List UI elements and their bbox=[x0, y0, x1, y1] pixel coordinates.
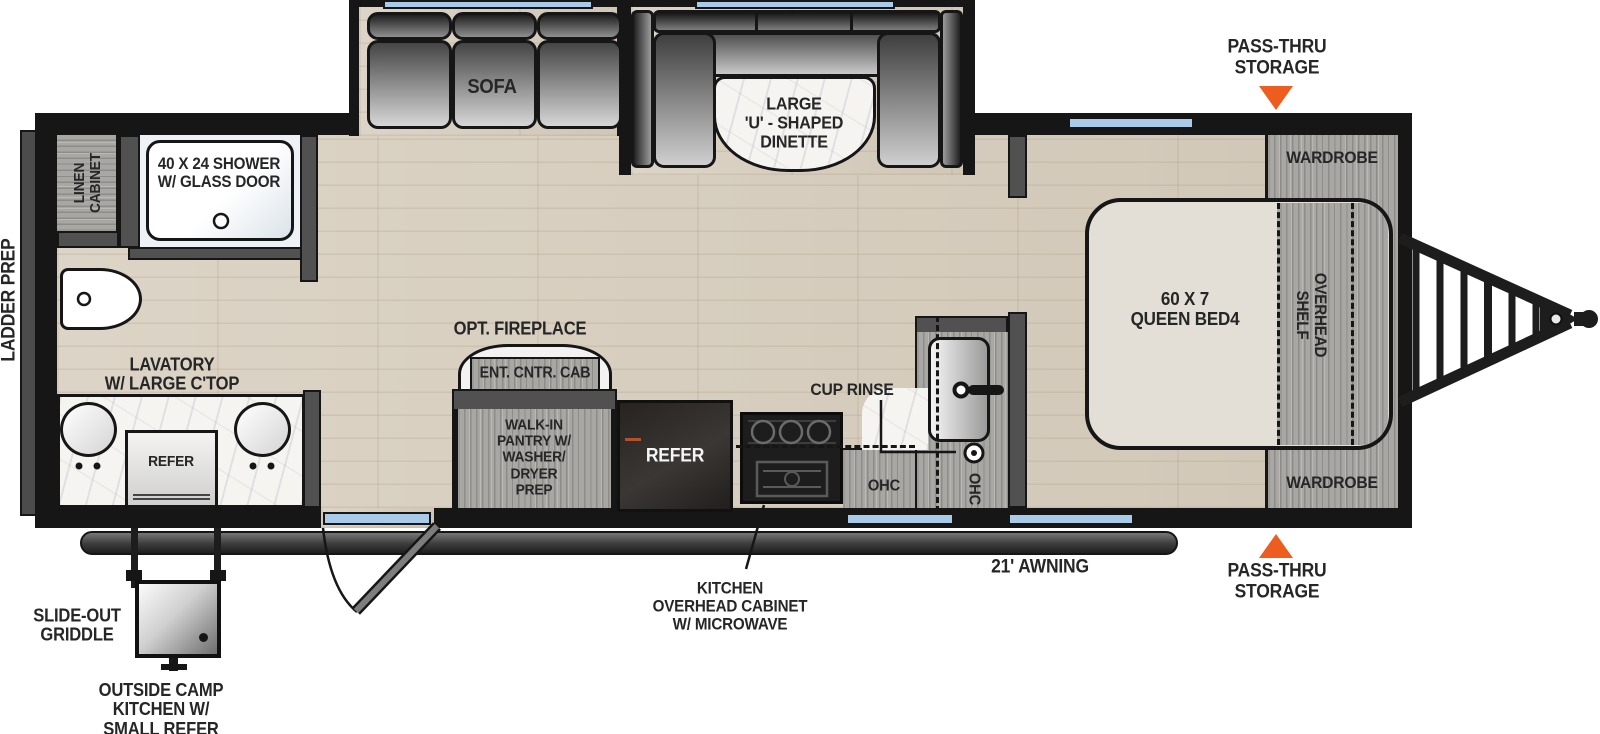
dinette-back-divider bbox=[755, 11, 758, 32]
dinette-back-top bbox=[653, 10, 941, 33]
range-cooktop bbox=[740, 412, 843, 504]
main-refer-accent bbox=[625, 438, 641, 441]
bathroom-refer-door-line bbox=[133, 494, 210, 500]
dinette-seat-right bbox=[877, 32, 941, 168]
ent-center-cabinet-label: ENT. CNTR. CAB bbox=[480, 366, 591, 383]
wall-shower-bottom bbox=[128, 247, 318, 260]
hitch-coupler-plate bbox=[1540, 297, 1578, 341]
window-dinette-slide bbox=[695, 0, 895, 9]
bedroom-wall-bottom bbox=[1008, 312, 1027, 508]
dinette-label: LARGE 'U' - SHAPED DINETTE bbox=[745, 95, 843, 152]
wardrobe-top-label: WARDROBE bbox=[1286, 149, 1378, 167]
sofa-seat-cushion bbox=[367, 40, 452, 129]
hitch-coupler-hole bbox=[1551, 314, 1562, 325]
griddle-bracket-bar bbox=[161, 664, 187, 670]
ladder-prep-label: LADDER PREP bbox=[0, 238, 20, 361]
main-refer-label: REFER bbox=[646, 447, 704, 468]
hitch-rail-bottom bbox=[1400, 323, 1570, 402]
dinette-seat-left bbox=[653, 32, 716, 168]
opt-fireplace-label: OPT. FIREPLACE bbox=[454, 319, 587, 338]
ohc-label-vertical: OHC bbox=[965, 473, 982, 505]
window-sofa-slide bbox=[383, 0, 593, 9]
floorplan-canvas: LADDER PREP 21' AWNING SLIDE-OUT GRIDDLE… bbox=[0, 0, 1600, 734]
wall-below-linen bbox=[57, 231, 119, 248]
outside-griddle bbox=[135, 580, 221, 658]
wall-shower-right bbox=[300, 135, 318, 282]
linen-cabinet-label: LINEN CABINET bbox=[72, 153, 104, 213]
slide-out-griddle-label: SLIDE-OUT GRIDDLE bbox=[33, 607, 121, 646]
ohc-dashed-line-vertical bbox=[936, 316, 939, 512]
queen-bed-label: 60 X 7 QUEEN BED4 bbox=[1131, 289, 1240, 329]
dinette-back-divider bbox=[850, 11, 853, 32]
awning-label: 21' AWNING bbox=[991, 558, 1089, 579]
bathroom-refer-label: REFER bbox=[148, 454, 194, 470]
dinette-back-left bbox=[631, 10, 654, 168]
dinette-back-right bbox=[940, 10, 963, 168]
pantry-top-cap bbox=[452, 389, 617, 411]
pass-thru-top-arrow bbox=[1259, 86, 1293, 110]
pass-thru-bottom-label: PASS-THRU STORAGE bbox=[1227, 561, 1326, 602]
toilet bbox=[60, 268, 142, 330]
bedroom-wall-top-stub bbox=[1008, 135, 1027, 198]
hitch-ball bbox=[1580, 310, 1598, 328]
shower-label: 40 X 24 SHOWER W/ GLASS DOOR bbox=[158, 156, 280, 192]
wall-linen-shower bbox=[119, 135, 140, 248]
overhead-shelf-dashed-line bbox=[1351, 203, 1354, 445]
sofa-label: SOFA bbox=[467, 77, 516, 99]
ohc-label-horizontal: OHC bbox=[868, 477, 900, 494]
window-bedroom-bottom bbox=[1008, 513, 1134, 525]
ohc-dashed-line-horizontal bbox=[736, 445, 915, 448]
outside-camp-kitchen-label: OUTSIDE CAMP KITCHEN W/ SMALL REFER bbox=[99, 681, 224, 734]
window-kitchen-bottom bbox=[846, 513, 954, 525]
pantry-label: WALK-IN PANTRY W/ WASHER/ DRYER PREP bbox=[497, 418, 571, 499]
kitchen-ohc-callout-label: KITCHEN OVERHEAD CABINET W/ MICROWAVE bbox=[653, 580, 808, 633]
sofa-back-cushion bbox=[452, 12, 537, 40]
window-bedroom-top bbox=[1068, 117, 1194, 129]
lavatory-sink-right bbox=[234, 402, 291, 457]
sofa-back-cushion bbox=[537, 12, 622, 40]
sofa-back-cushion bbox=[367, 12, 452, 40]
awning-bar bbox=[80, 531, 1178, 555]
hitch-ball-stub bbox=[1574, 312, 1586, 326]
pass-thru-bottom-arrow bbox=[1259, 534, 1293, 558]
sofa-seat-cushion bbox=[537, 40, 622, 129]
hitch-rail-top bbox=[1400, 238, 1570, 315]
entry-step bbox=[323, 512, 431, 525]
wardrobe-bottom-label: WARDROBE bbox=[1286, 474, 1378, 492]
overhead-shelf-label: OVERHEAD SHELF bbox=[1292, 273, 1328, 358]
cup-rinse-label: CUP RINSE bbox=[810, 381, 893, 399]
griddle-knob bbox=[199, 633, 208, 642]
wall-lavatory-right bbox=[303, 390, 321, 508]
pass-thru-top-label: PASS-THRU STORAGE bbox=[1227, 37, 1326, 78]
lavatory-sink-left bbox=[60, 402, 117, 457]
lavatory-label: LAVATORY W/ LARGE C'TOP bbox=[105, 356, 239, 395]
